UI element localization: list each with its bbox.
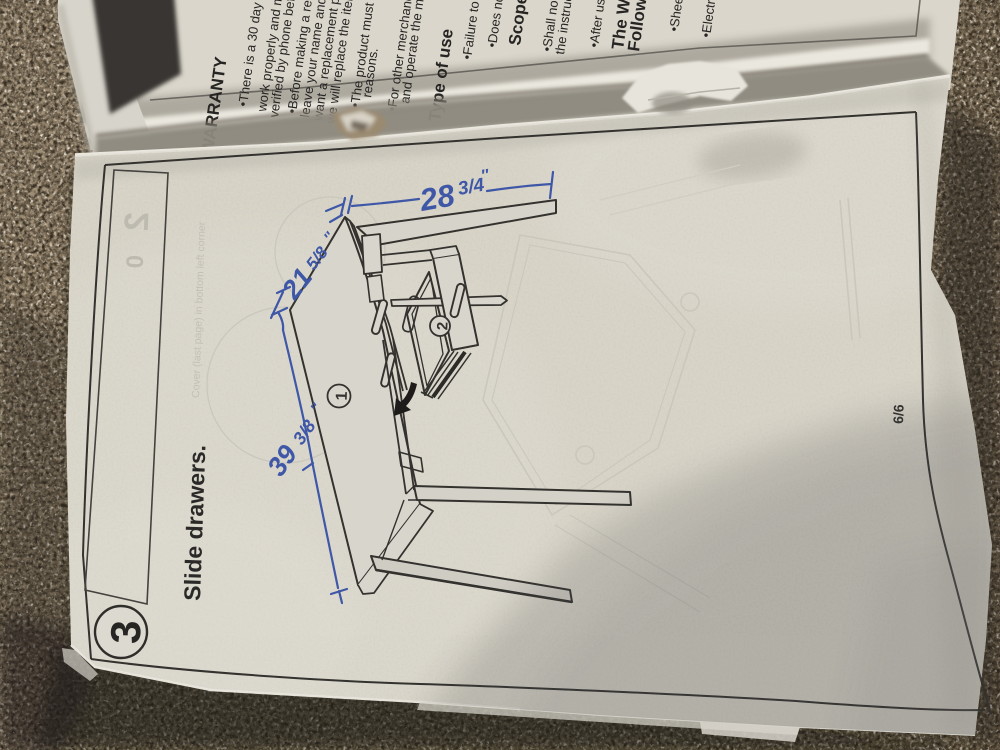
svg-text:2: 2 (118, 211, 157, 231)
svg-text:28: 28 (416, 177, 458, 218)
svg-text:Slide drawers.: Slide drawers. (179, 444, 210, 601)
svg-text:0: 0 (122, 255, 149, 269)
svg-text:2: 2 (434, 322, 451, 331)
svg-text:3: 3 (102, 620, 150, 645)
svg-text:1: 1 (334, 391, 351, 401)
